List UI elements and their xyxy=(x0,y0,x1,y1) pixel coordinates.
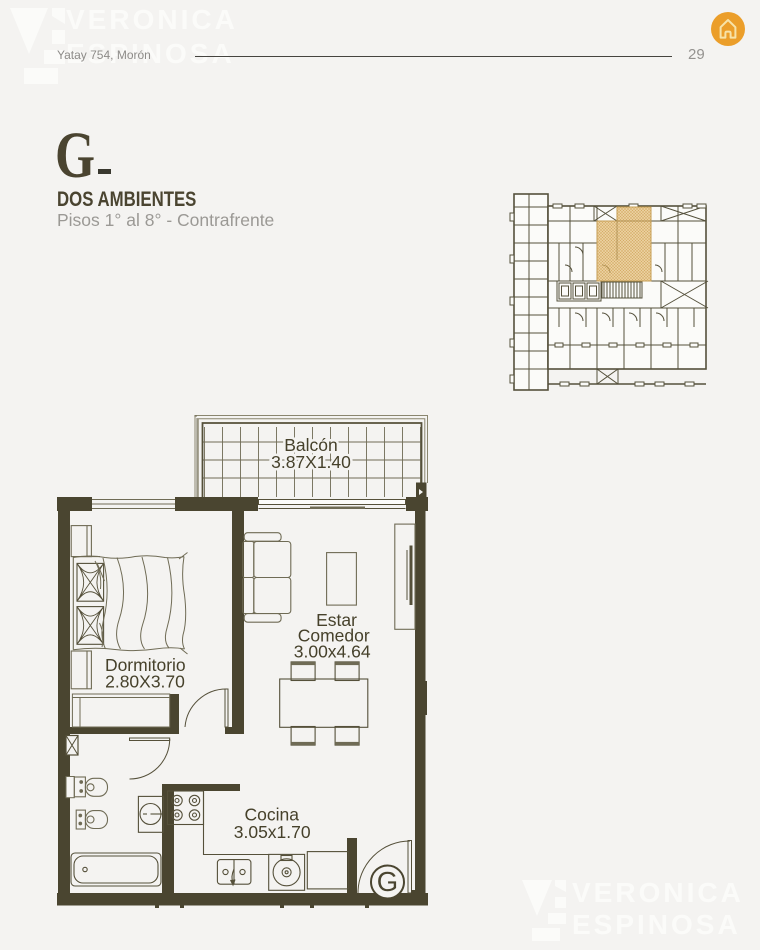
svg-text:3.87X1.40: 3.87X1.40 xyxy=(271,452,351,472)
svg-text:G: G xyxy=(377,866,398,897)
svg-text:3.05x1.70: 3.05x1.70 xyxy=(234,822,311,842)
svg-text:2.80X3.70: 2.80X3.70 xyxy=(105,672,185,692)
svg-text:3.00x4.64: 3.00x4.64 xyxy=(294,641,371,661)
